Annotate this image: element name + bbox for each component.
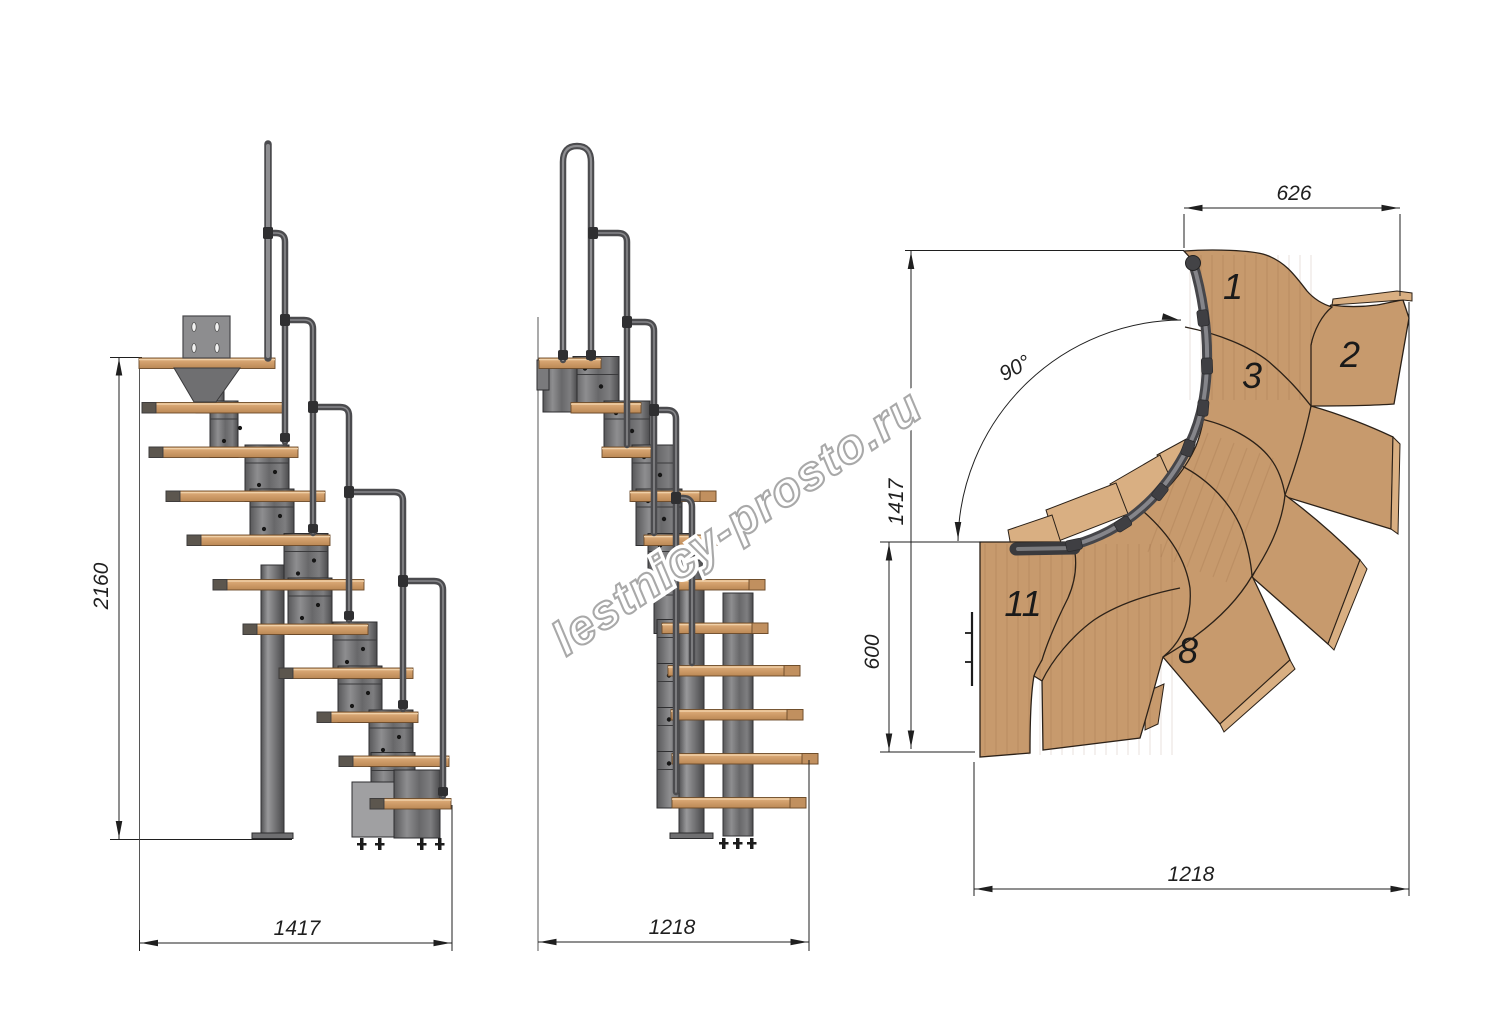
svg-text:1417: 1417	[274, 917, 322, 940]
svg-text:11: 11	[1004, 583, 1041, 624]
svg-text:3: 3	[1242, 355, 1262, 396]
svg-text:1417: 1417	[885, 477, 908, 525]
svg-text:1218: 1218	[1168, 863, 1215, 886]
svg-text:1: 1	[1223, 266, 1243, 307]
svg-text:2: 2	[1339, 334, 1360, 375]
svg-text:8: 8	[1178, 630, 1198, 671]
svg-text:1218: 1218	[649, 916, 696, 939]
svg-text:626: 626	[1276, 182, 1311, 205]
svg-text:600: 600	[861, 634, 884, 669]
svg-text:2160: 2160	[90, 562, 113, 610]
